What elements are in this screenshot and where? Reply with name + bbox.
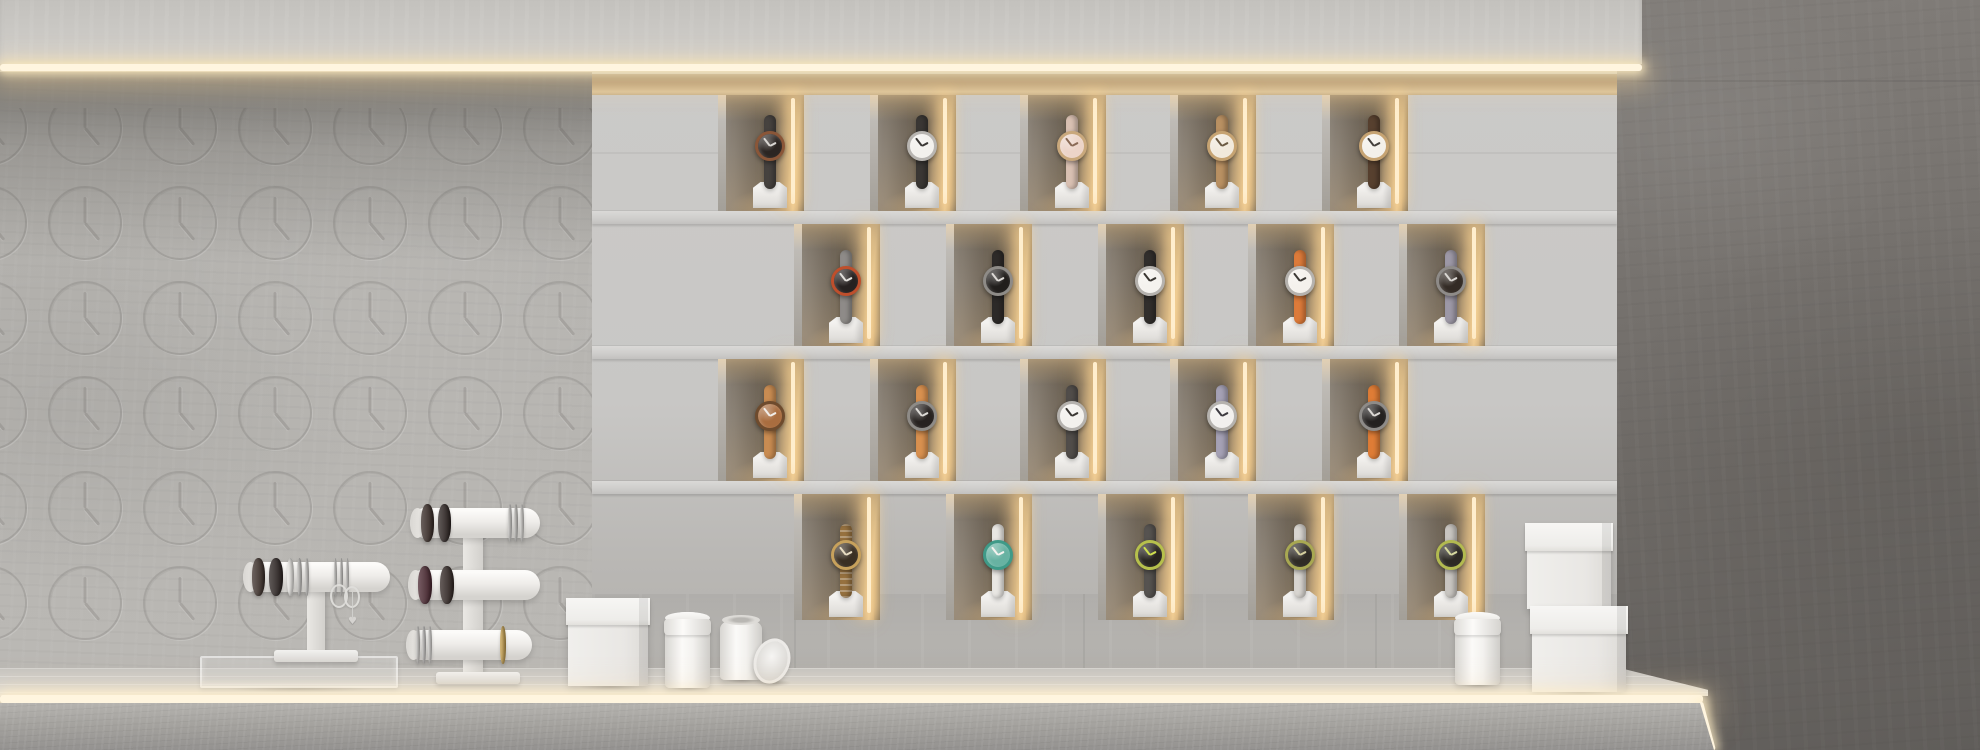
watch — [1283, 250, 1317, 324]
watch — [829, 250, 863, 324]
clock-hour-hand — [84, 507, 100, 526]
watch-face — [755, 401, 785, 431]
watch-hour-hand — [846, 277, 853, 282]
box-lid — [566, 598, 650, 625]
watch-hour-hand — [1374, 412, 1381, 417]
clock-hour-hand — [84, 602, 100, 621]
clock-minute-hand — [179, 482, 182, 508]
bracelet-band — [287, 558, 294, 596]
single-stand-tbar — [243, 562, 390, 592]
display-niche — [1399, 494, 1485, 620]
clock-hour-hand — [274, 412, 290, 431]
watch-face — [1285, 266, 1315, 296]
watch-face — [1135, 266, 1165, 296]
clock-minute-hand — [464, 292, 467, 318]
watch-hour-hand — [1222, 412, 1229, 417]
watch-hour-hand — [922, 412, 929, 417]
bracelet-band — [514, 504, 518, 542]
watch-hour-hand — [1451, 551, 1458, 556]
box-side-shade — [1617, 606, 1626, 692]
clock-motif — [428, 281, 502, 355]
left-gift-box — [568, 598, 648, 686]
watch — [1357, 385, 1391, 459]
box-lid — [1525, 523, 1613, 551]
display-niche — [946, 494, 1032, 620]
watch-hour-hand — [1300, 277, 1307, 282]
watch-face — [983, 266, 1013, 296]
box-side-shade — [1602, 523, 1611, 609]
clock-hour-hand — [369, 317, 385, 336]
watch-face — [1135, 540, 1165, 570]
watch — [1133, 524, 1167, 598]
shelf-band — [592, 481, 1617, 494]
clock-hour-hand — [0, 507, 5, 526]
watch-hour-hand — [1072, 412, 1079, 417]
clock-motif — [48, 376, 122, 450]
watch — [1205, 385, 1239, 459]
clock-minute-hand — [84, 482, 87, 508]
right-wall-seam — [1617, 80, 1980, 82]
clock-minute-hand — [274, 387, 277, 413]
display-niche — [1322, 359, 1408, 481]
watch — [905, 385, 939, 459]
display-wall-panel-seam — [1083, 594, 1085, 672]
watch-hour-hand — [1374, 142, 1381, 147]
right-box-top — [1527, 523, 1611, 609]
clock-motif — [238, 471, 312, 545]
watch-hour-hand — [1222, 142, 1229, 147]
watch — [1434, 524, 1468, 598]
bracelet-band — [500, 626, 506, 664]
watch — [1434, 250, 1468, 324]
clock-motif — [0, 376, 27, 450]
watch-face — [1207, 131, 1237, 161]
clock-minute-hand — [559, 387, 562, 413]
clock-motif — [333, 471, 407, 545]
clock-motif — [143, 471, 217, 545]
single-stand-foot — [274, 650, 358, 662]
clock-hour-hand — [179, 317, 195, 336]
triple-stand-foot — [436, 672, 520, 684]
clock-hour-hand — [274, 507, 290, 526]
watch — [1055, 115, 1089, 189]
watch-face — [831, 266, 861, 296]
canister-lid-band — [664, 619, 711, 635]
watch-face — [1359, 401, 1389, 431]
display-niche — [870, 359, 956, 481]
clock-minute-hand — [464, 387, 467, 413]
ceiling-soffit — [0, 0, 1642, 64]
clock-hour-hand — [464, 317, 480, 336]
watch — [1357, 115, 1391, 189]
display-wall-panel-seam — [1375, 594, 1377, 672]
display-niche — [1098, 494, 1184, 620]
watch-hour-hand — [1300, 551, 1307, 556]
watch-face — [907, 131, 937, 161]
watch — [753, 385, 787, 459]
watch — [1133, 250, 1167, 324]
watch-hour-hand — [770, 412, 777, 417]
bracelet-band — [421, 504, 434, 542]
display-niche — [1098, 224, 1184, 346]
display-niche — [1020, 95, 1106, 211]
display-niche — [870, 95, 956, 211]
clock-minute-hand — [274, 292, 277, 318]
clock-hour-hand — [0, 412, 5, 431]
watch — [1283, 524, 1317, 598]
clock-minute-hand — [179, 387, 182, 413]
watch-hour-hand — [770, 142, 777, 147]
watch-hour-hand — [998, 551, 1005, 556]
watch-face — [831, 540, 861, 570]
box-side-shade — [639, 598, 648, 686]
watch-face — [1057, 401, 1087, 431]
watch-face — [1359, 131, 1389, 161]
clock-hour-hand — [274, 317, 290, 336]
clock-minute-hand — [84, 387, 87, 413]
clock-motif — [523, 376, 592, 450]
bracelet-band — [252, 558, 265, 596]
watch-boutique-scene: ♥ — [0, 0, 1980, 750]
clock-hour-hand — [179, 412, 195, 431]
clock-motif — [523, 281, 592, 355]
display-niche — [718, 359, 804, 481]
watch — [1055, 385, 1089, 459]
clock-motif — [0, 281, 27, 355]
clock-motif — [48, 471, 122, 545]
clock-minute-hand — [559, 292, 562, 318]
left-wall-soffit-shadow — [0, 72, 592, 262]
niche-display-wall — [592, 74, 1617, 672]
clock-motif — [238, 376, 312, 450]
clock-hour-hand — [84, 412, 100, 431]
display-niche — [1020, 359, 1106, 481]
clock-hour-hand — [559, 507, 575, 526]
bracelet-band — [422, 626, 426, 664]
watch-face — [1436, 266, 1466, 296]
watch — [829, 524, 863, 598]
bracelet-band — [428, 626, 432, 664]
counter-led-strip — [0, 695, 1703, 703]
clock-minute-hand — [559, 482, 562, 508]
bracelet-band — [269, 558, 283, 596]
clock-hour-hand — [84, 317, 100, 336]
bracelet-band — [438, 504, 451, 542]
clock-hour-hand — [369, 507, 385, 526]
display-niche — [946, 224, 1032, 346]
right-canister — [1455, 612, 1500, 685]
clock-motif — [143, 281, 217, 355]
watch — [981, 524, 1015, 598]
watch-hour-hand — [1451, 277, 1458, 282]
display-niche — [1248, 224, 1334, 346]
clock-minute-hand — [84, 292, 87, 318]
clock-motif — [333, 281, 407, 355]
charm-chain — [352, 592, 353, 618]
soffit-led-strip — [0, 64, 1642, 71]
bracelet-band — [520, 504, 524, 542]
clock-hour-hand — [0, 602, 5, 621]
clock-motif — [143, 566, 217, 640]
watch — [981, 250, 1015, 324]
watch-hour-hand — [846, 551, 853, 556]
counter-front-face — [0, 703, 1714, 750]
watch-hour-hand — [1150, 277, 1157, 282]
right-concrete-wall — [1617, 0, 1980, 750]
clock-motif — [333, 376, 407, 450]
display-niche — [794, 224, 880, 346]
clock-hour-hand — [179, 507, 195, 526]
clock-hour-hand — [559, 412, 575, 431]
display-niche — [1248, 494, 1334, 620]
clock-hour-hand — [369, 602, 385, 621]
watch-face — [907, 401, 937, 431]
display-niche — [1399, 224, 1485, 346]
clock-motif — [428, 376, 502, 450]
single-stand-post — [307, 588, 325, 654]
display-niche — [794, 494, 880, 620]
clock-motif — [0, 566, 27, 640]
bracelet-band — [416, 626, 420, 664]
clock-minute-hand — [369, 292, 372, 318]
display-wall-warm-band — [592, 74, 1617, 95]
watch-face — [1057, 131, 1087, 161]
canister-open-top — [722, 615, 760, 625]
shelf-band — [592, 211, 1617, 224]
bracelet-band — [508, 504, 512, 542]
clock-minute-hand — [369, 482, 372, 508]
watch-face — [1285, 540, 1315, 570]
clock-hour-hand — [179, 602, 195, 621]
watch — [753, 115, 787, 189]
bracelet-band — [418, 566, 432, 604]
display-niche — [1170, 95, 1256, 211]
clock-hour-hand — [464, 412, 480, 431]
display-niche — [1322, 95, 1408, 211]
watch-hour-hand — [1150, 551, 1157, 556]
clock-hour-hand — [0, 317, 5, 336]
right-wall-texture — [1617, 0, 1980, 750]
shelf-band — [592, 346, 1617, 359]
display-niche — [1170, 359, 1256, 481]
display-niche — [718, 95, 804, 211]
clock-minute-hand — [559, 577, 562, 603]
watch-face — [1207, 401, 1237, 431]
watch-hour-hand — [1072, 142, 1079, 147]
right-box-bottom — [1532, 606, 1626, 692]
clock-motif — [238, 281, 312, 355]
heart-charm: ♥ — [348, 616, 357, 627]
watch-face — [755, 131, 785, 161]
clock-minute-hand — [179, 292, 182, 318]
clock-minute-hand — [369, 387, 372, 413]
bracelet-band — [297, 558, 302, 596]
clock-hour-hand — [369, 412, 385, 431]
watch-face — [983, 540, 1013, 570]
clock-motif — [48, 566, 122, 640]
clock-minute-hand — [179, 577, 182, 603]
clock-motif — [143, 376, 217, 450]
watch-hour-hand — [922, 142, 929, 147]
watch-hour-hand — [998, 277, 1005, 282]
clock-minute-hand — [84, 577, 87, 603]
clock-minute-hand — [274, 482, 277, 508]
bracelet-band — [440, 566, 454, 604]
clock-motif — [0, 471, 27, 545]
clock-motif — [48, 281, 122, 355]
canister-with-lid — [665, 612, 710, 688]
clock-minute-hand — [464, 482, 467, 508]
watch-face — [1436, 540, 1466, 570]
watch — [1205, 115, 1239, 189]
canister-lid-band — [1454, 619, 1501, 635]
clock-hour-hand — [274, 602, 290, 621]
clock-hour-hand — [559, 317, 575, 336]
box-lid — [1530, 606, 1628, 634]
bracelet-band — [305, 558, 309, 596]
watch — [905, 115, 939, 189]
